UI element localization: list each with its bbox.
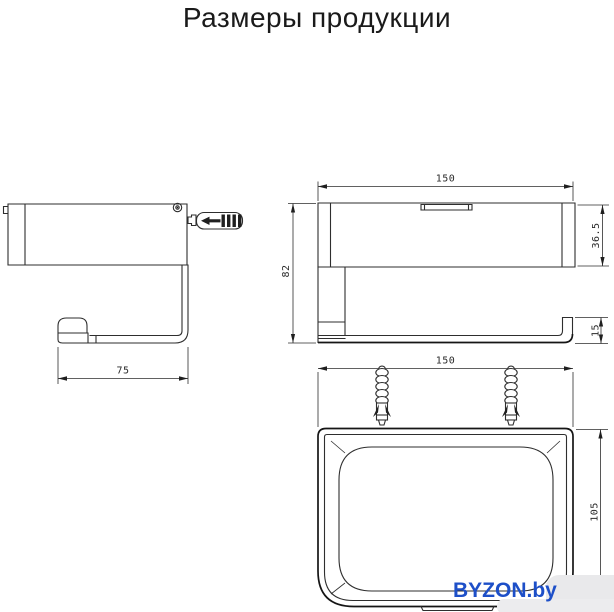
side-arm-outline [58, 265, 188, 343]
side-view: 75 [4, 203, 243, 384]
dim-label-36-5: 36.5 [591, 222, 602, 248]
front-arm-outline [318, 267, 573, 343]
side-body-outline [4, 204, 188, 265]
dim-label-75: 75 [116, 366, 129, 377]
watermark-logo: BYZON.by [453, 579, 557, 603]
dim-label-82: 82 [281, 264, 292, 277]
dimension-top-width: 150 [318, 356, 573, 428]
product-dimensions-page: Размеры продукции [0, 0, 614, 612]
tray-inner-outline [339, 447, 553, 591]
front-view: 150 82 36.5 15 [281, 174, 609, 344]
dim-label-150-front: 150 [436, 174, 456, 185]
corner-braces [331, 441, 560, 594]
dim-label-105: 105 [590, 502, 601, 522]
wall-anchor-horizontal-icon [188, 213, 243, 230]
dimension-front-width: 150 [318, 174, 573, 202]
technical-drawing: 75 150 82 36.5 [0, 0, 614, 612]
dimension-side-arm-length: 75 [58, 347, 188, 384]
screw-head-icon [173, 203, 181, 211]
top-view: 150 105 [318, 356, 608, 611]
plate-rim-inner [325, 435, 567, 601]
dim-label-150-top: 150 [436, 356, 456, 367]
wall-anchor-vertical-icon [373, 366, 391, 425]
dimension-front-body-height: 36.5 [578, 205, 610, 266]
dimension-front-arm-height: 15 [575, 318, 608, 344]
dim-label-15: 15 [591, 324, 602, 337]
wall-anchor-vertical-icon [502, 366, 520, 425]
front-body-outline [318, 203, 575, 267]
dimension-front-height: 82 [281, 204, 316, 344]
